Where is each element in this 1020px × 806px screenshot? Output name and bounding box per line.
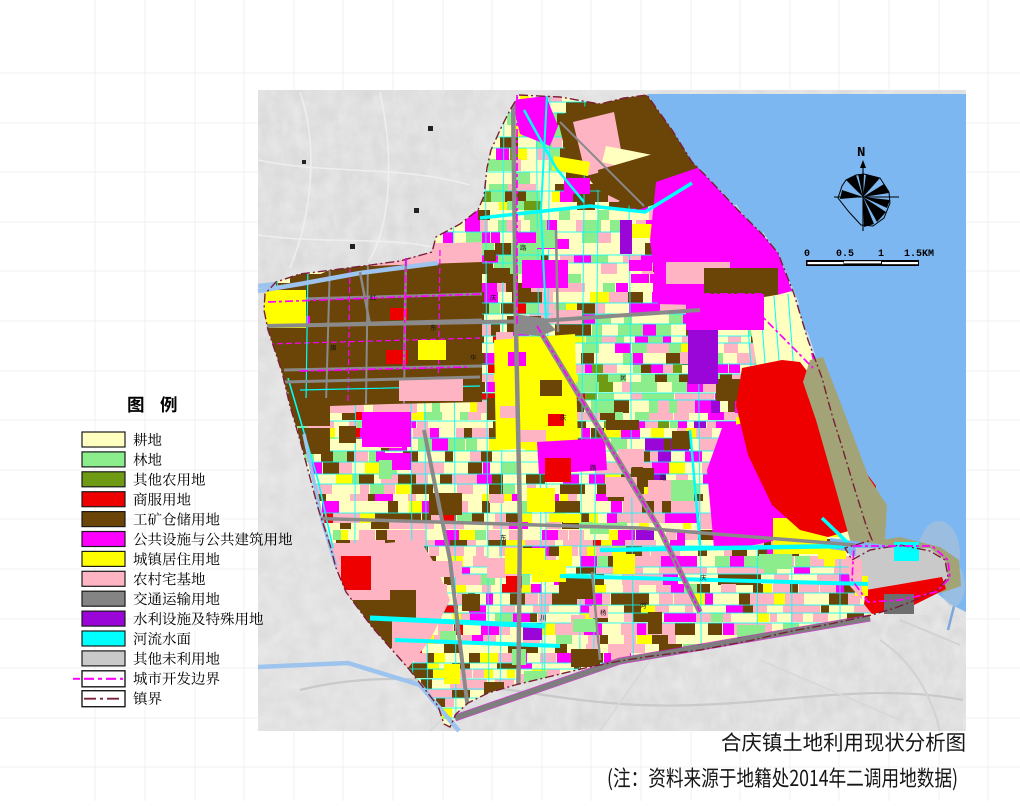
svg-text:N: N bbox=[857, 145, 865, 161]
svg-text:0.5: 0.5 bbox=[836, 249, 854, 260]
svg-text:1.5KM: 1.5KM bbox=[904, 249, 934, 260]
svg-text:0: 0 bbox=[804, 249, 810, 260]
svg-text:1: 1 bbox=[878, 249, 884, 260]
